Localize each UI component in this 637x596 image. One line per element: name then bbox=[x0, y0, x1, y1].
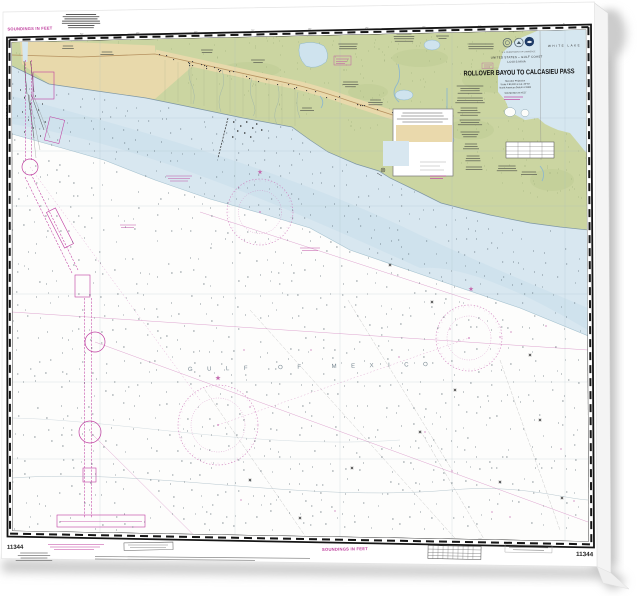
svg-text:Mercator Projection: Mercator Projection bbox=[505, 79, 526, 82]
svg-text:11344: 11344 bbox=[576, 551, 594, 558]
svg-text:LOUISIANA: LOUISIANA bbox=[507, 59, 526, 63]
svg-text:WHITE LAKE: WHITE LAKE bbox=[548, 43, 581, 48]
svg-text:SOUNDINGS IN FEET: SOUNDINGS IN FEET bbox=[322, 546, 368, 552]
svg-text:11344: 11344 bbox=[7, 545, 24, 551]
svg-text:SOUNDINGS IN FEET: SOUNDINGS IN FEET bbox=[7, 25, 52, 31]
